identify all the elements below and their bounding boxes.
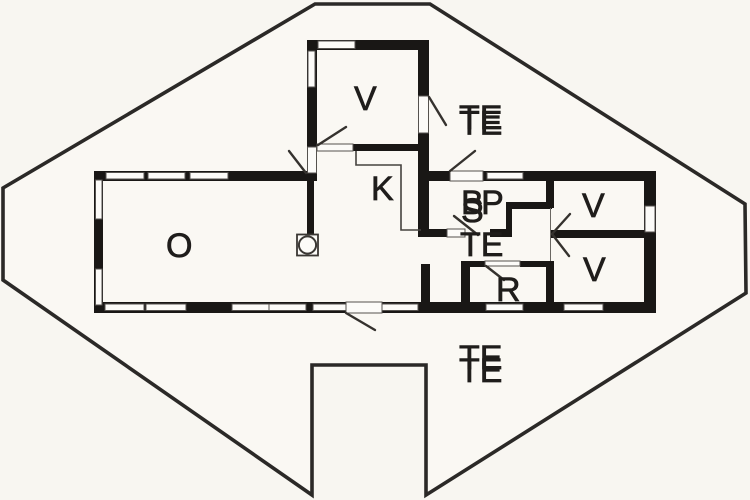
svg-text:R: R: [496, 271, 521, 309]
svg-text:TE: TE: [459, 105, 502, 143]
svg-text:V: V: [583, 251, 606, 289]
svg-text:TE: TE: [459, 352, 502, 390]
svg-text:K: K: [371, 170, 394, 208]
svg-text:V: V: [582, 187, 605, 225]
svg-text:V: V: [354, 80, 377, 118]
svg-text:TE: TE: [460, 226, 503, 264]
svg-text:S: S: [461, 192, 484, 230]
svg-text:O: O: [166, 227, 192, 265]
